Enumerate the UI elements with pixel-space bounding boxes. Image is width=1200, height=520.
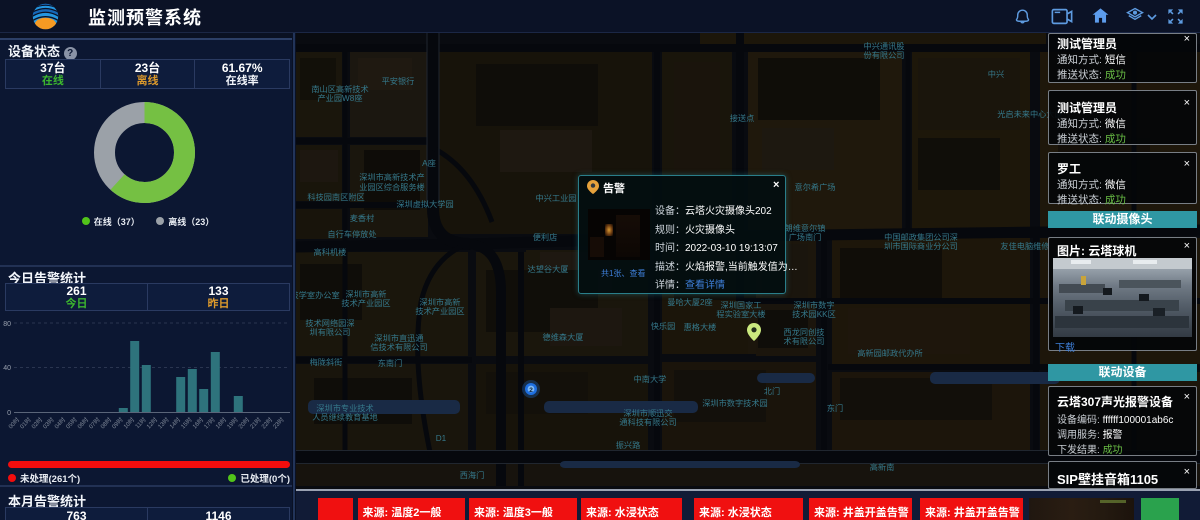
svg-text:西龙同创技: 西龙同创技 bbox=[784, 327, 825, 337]
svg-text:05时: 05时 bbox=[64, 416, 79, 431]
svg-text:技术网络园深: 技术网络园深 bbox=[305, 318, 354, 328]
svg-text:09时: 09时 bbox=[110, 416, 125, 431]
svg-text:高新南: 高新南 bbox=[870, 462, 895, 472]
svg-text:技术产业园区: 技术产业园区 bbox=[415, 306, 464, 316]
svg-text:06时: 06时 bbox=[76, 416, 91, 431]
svg-text:麦香村: 麦香村 bbox=[350, 213, 375, 223]
svg-text:技术园KK区: 技术园KK区 bbox=[792, 309, 836, 319]
svg-text:0: 0 bbox=[7, 410, 11, 417]
svg-text:便利店: 便利店 bbox=[533, 232, 558, 242]
svg-text:80: 80 bbox=[3, 321, 11, 328]
svg-text:平安银行: 平安银行 bbox=[382, 76, 415, 86]
svg-text:振兴路: 振兴路 bbox=[616, 440, 641, 450]
svg-text:02时: 02时 bbox=[30, 416, 45, 431]
svg-text:40: 40 bbox=[3, 365, 11, 372]
svg-text:10时: 10时 bbox=[122, 416, 137, 431]
svg-text:份有限公司: 份有限公司 bbox=[864, 50, 905, 60]
svg-text:东门: 东门 bbox=[827, 403, 843, 413]
svg-text:03时: 03时 bbox=[41, 416, 56, 431]
svg-text:深圳市数字: 深圳市数字 bbox=[794, 300, 835, 310]
svg-text:16时: 16时 bbox=[191, 416, 206, 431]
svg-text:21时: 21时 bbox=[248, 416, 263, 431]
svg-text:00时: 00时 bbox=[7, 416, 22, 431]
svg-text:快乐园: 快乐园 bbox=[651, 321, 676, 331]
svg-text:技术产业园区: 技术产业园区 bbox=[341, 298, 390, 308]
svg-text:中兴工业园: 中兴工业园 bbox=[536, 193, 577, 203]
svg-text:嘉枝学室办公室: 嘉枝学室办公室 bbox=[296, 290, 340, 300]
svg-text:自行车停放处: 自行车停放处 bbox=[327, 229, 376, 239]
svg-text:中兴通讯股: 中兴通讯股 bbox=[864, 41, 905, 51]
svg-text:产业园W8座: 产业园W8座 bbox=[317, 93, 362, 103]
svg-text:12时: 12时 bbox=[145, 416, 160, 431]
svg-text:信技术有限公司: 信技术有限公司 bbox=[370, 342, 427, 352]
svg-text:中兴: 中兴 bbox=[988, 69, 1004, 79]
svg-text:高新园邮政代办所: 高新园邮政代办所 bbox=[857, 348, 923, 358]
svg-text:中南大学: 中南大学 bbox=[634, 374, 667, 384]
svg-text:22时: 22时 bbox=[260, 416, 275, 431]
svg-text:东南门: 东南门 bbox=[378, 358, 403, 368]
svg-text:20时: 20时 bbox=[237, 416, 252, 431]
svg-text:达望谷大厦: 达望谷大厦 bbox=[528, 264, 569, 274]
svg-text:07时: 07时 bbox=[87, 416, 102, 431]
svg-text:通科技有限公司: 通科技有限公司 bbox=[619, 417, 676, 427]
svg-text:高科机楼: 高科机楼 bbox=[314, 247, 347, 257]
svg-text:南山区高新技术: 南山区高新技术 bbox=[311, 84, 368, 94]
svg-text:13时: 13时 bbox=[156, 416, 171, 431]
svg-text:北门: 北门 bbox=[764, 386, 780, 396]
svg-text:西海门: 西海门 bbox=[460, 470, 485, 480]
svg-text:19时: 19时 bbox=[225, 416, 240, 431]
svg-text:深圳市数字技术园: 深圳市数字技术园 bbox=[702, 398, 768, 408]
svg-text:深圳市专业技术: 深圳市专业技术 bbox=[316, 403, 373, 413]
svg-text:08时: 08时 bbox=[99, 416, 114, 431]
svg-text:17时: 17时 bbox=[202, 416, 217, 431]
svg-text:深圳虚拟大学园: 深圳虚拟大学园 bbox=[396, 199, 453, 209]
svg-text:意尔希广场: 意尔希广场 bbox=[795, 182, 836, 192]
svg-text:11时: 11时 bbox=[133, 416, 147, 430]
svg-text:程实验室大楼: 程实验室大楼 bbox=[716, 309, 765, 319]
svg-text:04时: 04时 bbox=[53, 416, 68, 431]
svg-text:术有限公司: 术有限公司 bbox=[784, 336, 825, 346]
svg-text:曼哈大厦2座: 曼哈大厦2座 bbox=[667, 297, 713, 307]
svg-text:科技园南区附区: 科技园南区附区 bbox=[307, 192, 364, 202]
svg-text:圳市国际商业分公司: 圳市国际商业分公司 bbox=[884, 241, 958, 251]
svg-text:人员继续教育基地: 人员继续教育基地 bbox=[312, 412, 378, 422]
svg-text:梅陇斜街: 梅陇斜街 bbox=[310, 357, 343, 367]
svg-text:德维森大厦: 德维森大厦 bbox=[543, 332, 584, 342]
svg-text:01时: 01时 bbox=[18, 416, 33, 431]
svg-text:D1: D1 bbox=[436, 434, 447, 443]
svg-text:深圳市顺迅交: 深圳市顺迅交 bbox=[623, 408, 672, 418]
svg-text:接送点: 接送点 bbox=[730, 113, 755, 123]
svg-text:中国邮政集团公司深: 中国邮政集团公司深 bbox=[884, 232, 958, 242]
svg-text:2: 2 bbox=[529, 387, 533, 394]
svg-text:23时: 23时 bbox=[271, 416, 286, 431]
svg-text:圳有限公司: 圳有限公司 bbox=[310, 327, 351, 337]
svg-text:业园区综合服务楼: 业园区综合服务楼 bbox=[359, 182, 425, 192]
svg-text:深圳市直迅通: 深圳市直迅通 bbox=[374, 333, 423, 343]
svg-text:惠格大楼: 惠格大楼 bbox=[684, 322, 717, 332]
svg-text:15时: 15时 bbox=[179, 416, 194, 431]
svg-text:深圳市高新: 深圳市高新 bbox=[420, 297, 461, 307]
svg-text:深圳市高新: 深圳市高新 bbox=[346, 289, 387, 299]
svg-text:14时: 14时 bbox=[168, 416, 183, 431]
svg-text:18时: 18时 bbox=[214, 416, 229, 431]
svg-text:深圳国家工: 深圳国家工 bbox=[721, 300, 762, 310]
svg-text:深圳市高新技术产: 深圳市高新技术产 bbox=[359, 172, 425, 182]
svg-text:A座: A座 bbox=[422, 158, 436, 168]
svg-text:友佳电脑维修: 友佳电脑维修 bbox=[1000, 241, 1049, 251]
